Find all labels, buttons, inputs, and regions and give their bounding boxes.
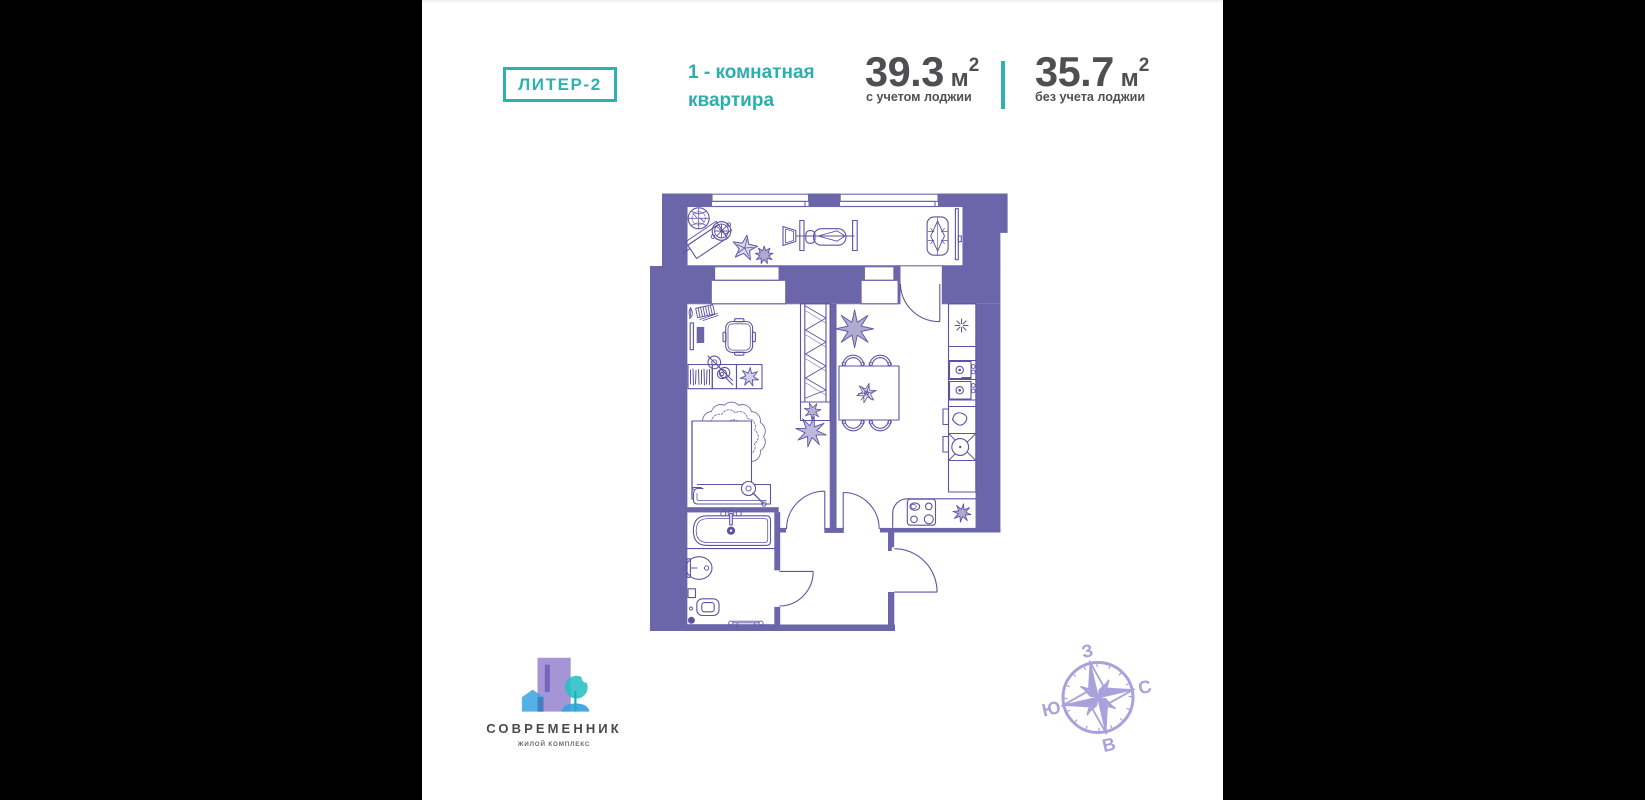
svg-text:Ю: Ю [1040, 697, 1063, 721]
svg-text:З: З [1080, 640, 1095, 662]
svg-text:С: С [1136, 676, 1153, 698]
svg-text:В: В [1100, 734, 1117, 756]
